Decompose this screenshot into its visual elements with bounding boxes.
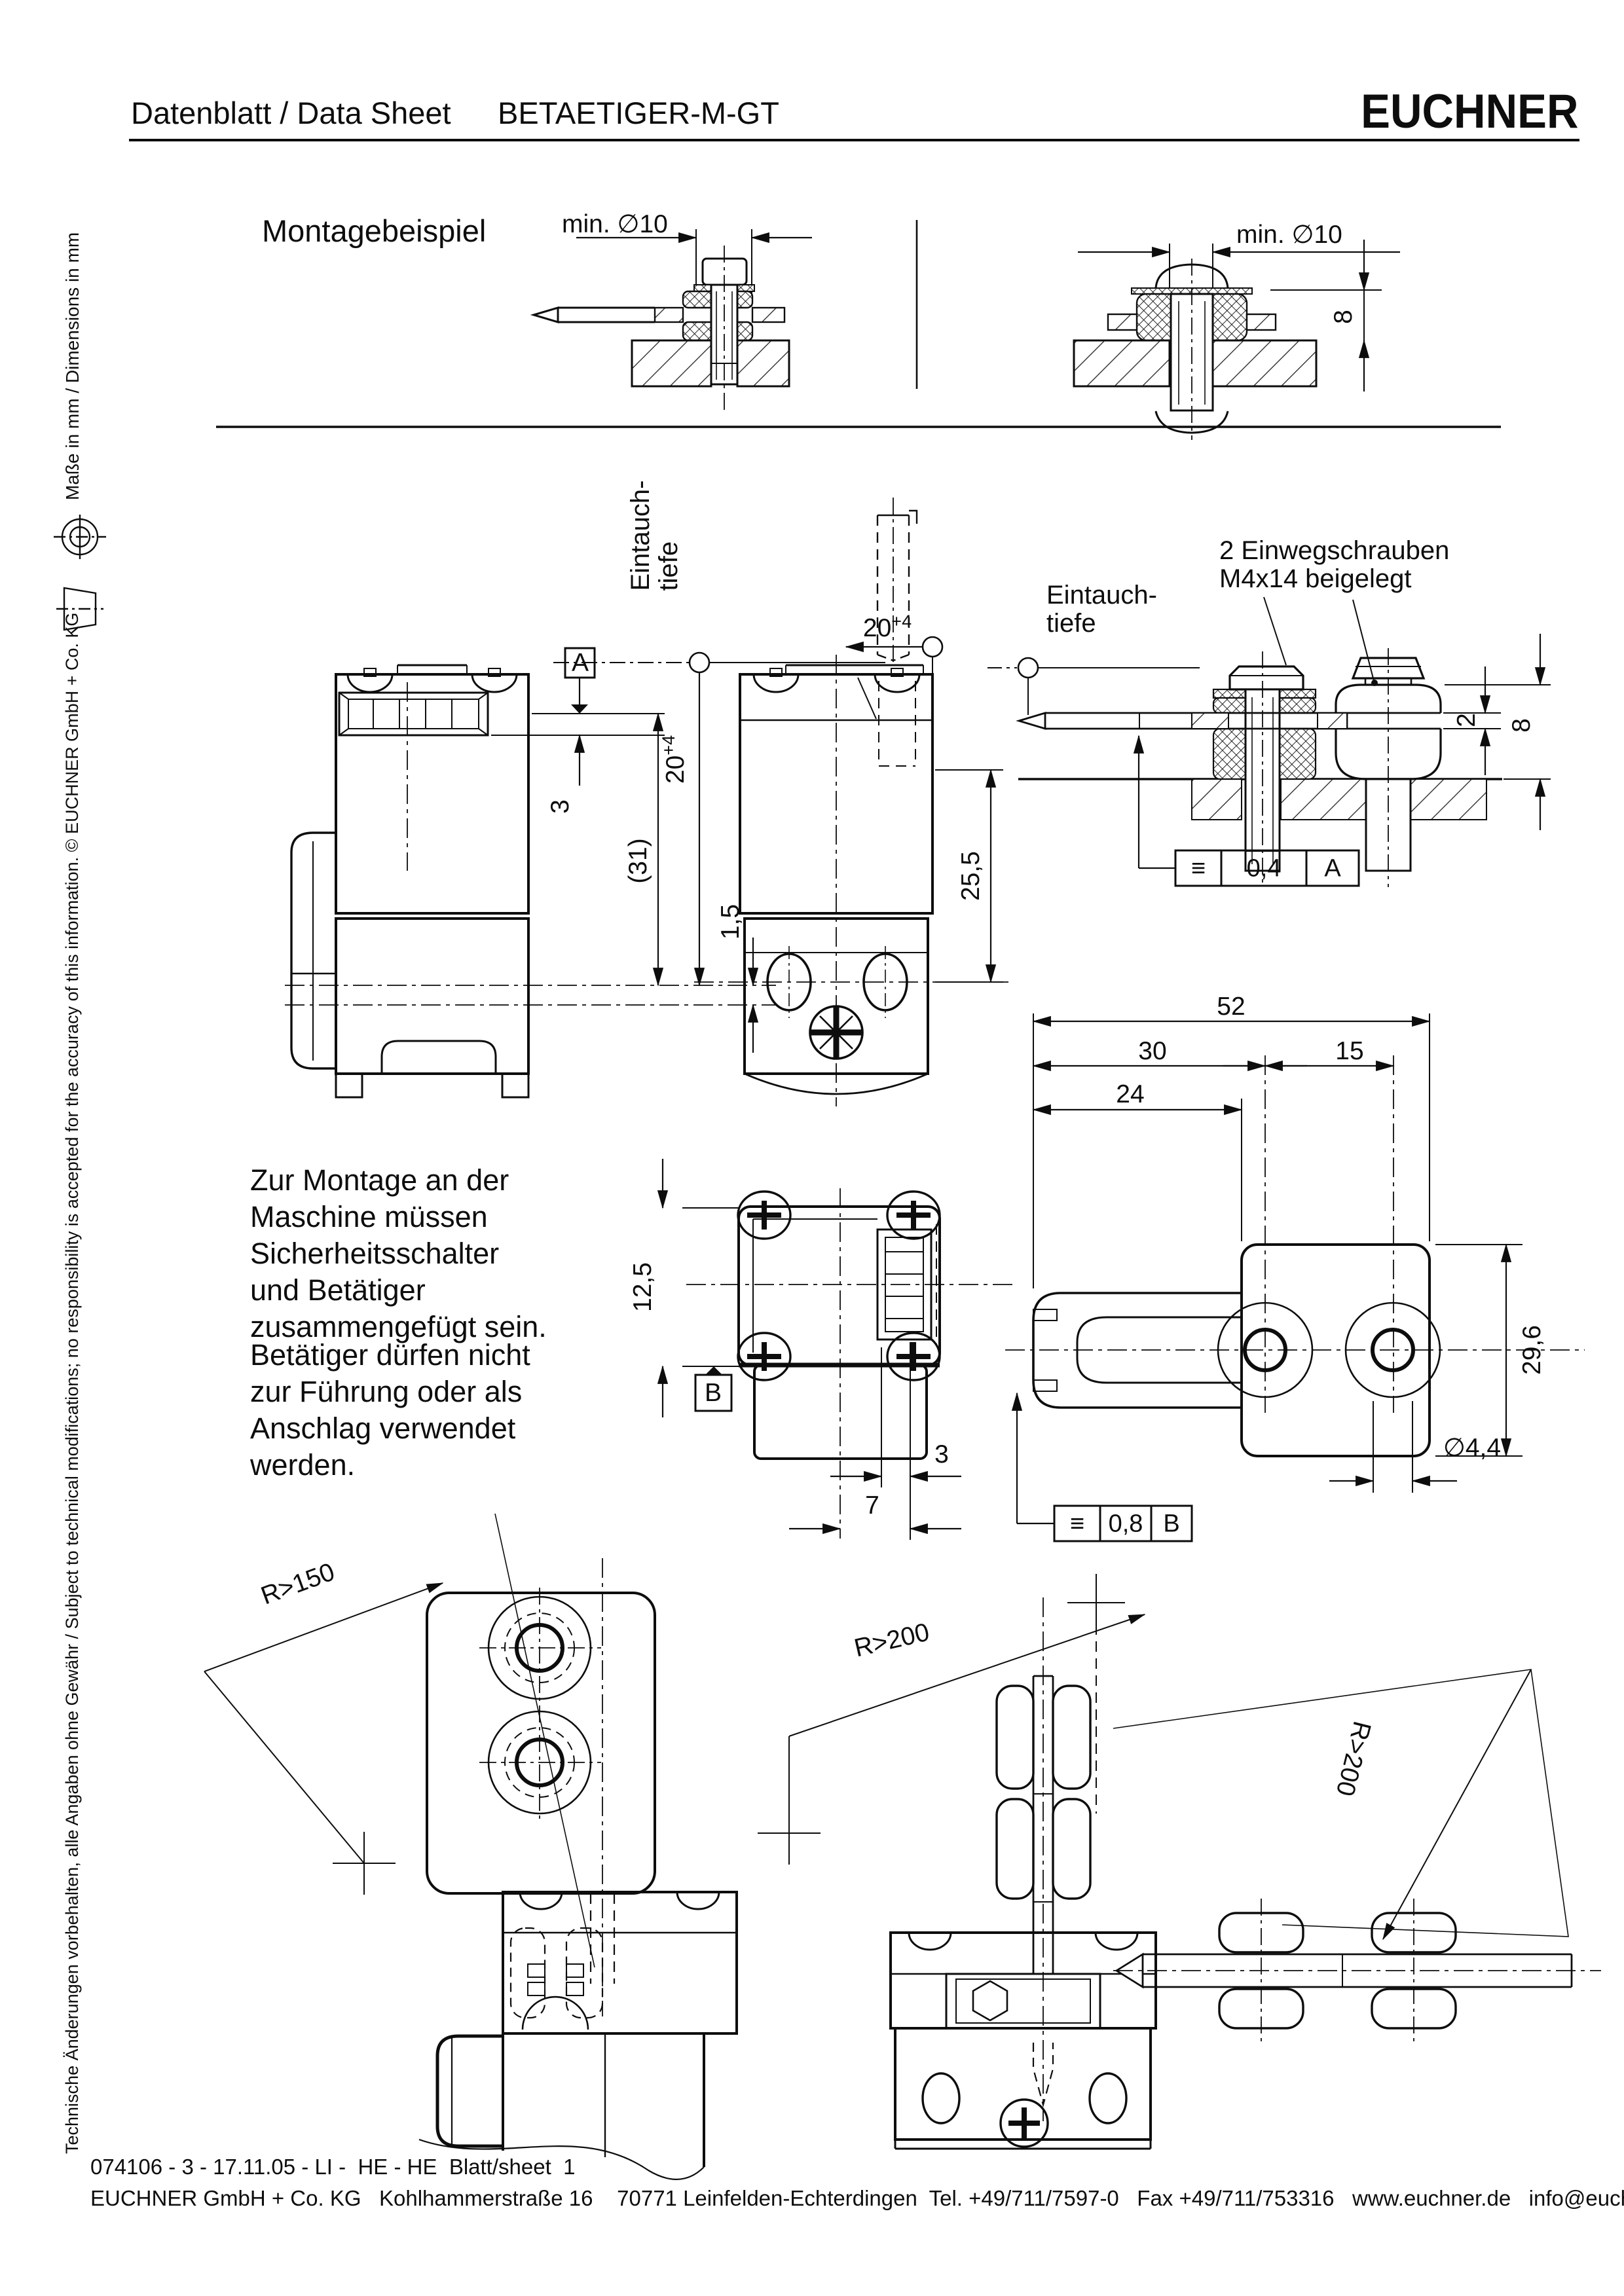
montage-title: Montagebeispiel	[262, 215, 486, 248]
note-paragraph-1: Zur Montage an der Maschine müssen Siche…	[250, 1162, 547, 1345]
sidebar-disclaimer: Technische Änderungen vorbehalten, alle …	[63, 613, 82, 2154]
screw-note: 2 Einwegschrauben M4x14 beigelegt	[1219, 537, 1449, 593]
tol-b-symbol: ≡	[1070, 1510, 1084, 1537]
datum-a-label: A	[572, 649, 589, 677]
footer-doc-line: 074106 - 3 - 17.11.05 - LI - HE - HE Bla…	[90, 2155, 575, 2179]
mounting-cross-section	[987, 597, 1551, 887]
footer-address: EUCHNER GmbH + Co. KG Kohlhammerstraße 1…	[90, 2187, 1624, 2210]
dim-24: 24	[1116, 1081, 1144, 1108]
actuator-top-view	[1005, 1013, 1585, 1541]
dim-d4-4: ∅4,4	[1443, 1434, 1501, 1462]
dim-15: 15	[1335, 1038, 1363, 1065]
dim-52: 52	[1217, 993, 1245, 1021]
dim-12-5: 12,5	[629, 1262, 657, 1312]
product-title: BETAETIGER-M-GT	[498, 97, 779, 130]
dim-31: (31)	[625, 838, 652, 883]
note-paragraph-2: Betätiger dürfen nicht zur Führung oder …	[250, 1337, 530, 1484]
dim-25-5: 25,5	[957, 851, 985, 901]
application-hinged-left	[204, 1514, 737, 2179]
dim-30: 30	[1138, 1038, 1166, 1065]
tol-b-value: 0,8	[1109, 1510, 1143, 1537]
immersion-depth-label-right: Eintauch- tiefe	[1046, 581, 1157, 638]
dim-8-section: 8	[1508, 718, 1536, 733]
dim-8-montage: 8	[1330, 310, 1357, 324]
dim-20plus4-front: 20+4	[863, 612, 912, 642]
montage-example-right	[1074, 240, 1400, 440]
datasheet-page: Datenblatt / Data Sheet BETAETIGER-M-GT …	[0, 0, 1624, 2296]
brand-logo: EUCHNER	[1361, 86, 1578, 137]
sidebar-units-note: Maße in mm / Dimensions in mm	[63, 232, 83, 500]
dim-min-d10-right: min. ∅10	[1236, 221, 1342, 249]
side-view-switch	[285, 648, 776, 1097]
tol-a-symbol: ≡	[1191, 855, 1206, 882]
application-hinged-right	[758, 1574, 1601, 2149]
tol-a-value: 0,4	[1247, 855, 1282, 882]
dim-min-d10-left: min. ∅10	[562, 211, 668, 238]
dim-3-side: 3	[547, 799, 574, 814]
dim-7: 7	[865, 1492, 879, 1520]
dim-2: 2	[1453, 713, 1481, 727]
tol-b-datum: B	[1163, 1510, 1179, 1537]
dim-3-top: 3	[934, 1441, 949, 1468]
dim-1-5: 1,5	[717, 904, 745, 939]
doc-type-title: Datenblatt / Data Sheet	[131, 97, 451, 130]
montage-example-left	[534, 229, 812, 412]
dim-20plus4-side: 20+4	[659, 735, 690, 784]
datum-b-label: B	[705, 1379, 722, 1407]
dim-29-6: 29,6	[1519, 1325, 1546, 1375]
immersion-depth-label-vertical: Eintauch- tiefe	[627, 481, 683, 591]
drawing-canvas	[0, 0, 1624, 2296]
tol-a-datum: A	[1324, 855, 1340, 882]
top-view-switch	[663, 1159, 1014, 1540]
